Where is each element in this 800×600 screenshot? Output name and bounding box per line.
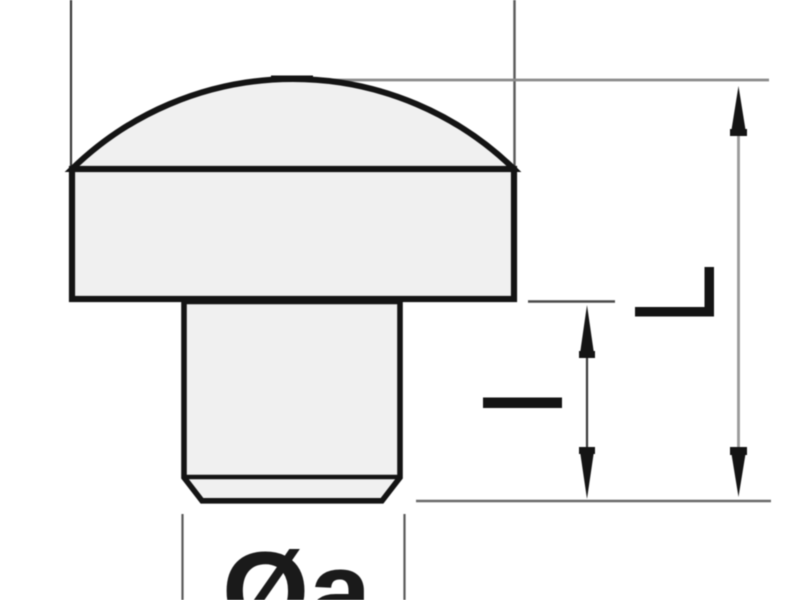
- svg-text:Øa: Øa: [222, 529, 372, 600]
